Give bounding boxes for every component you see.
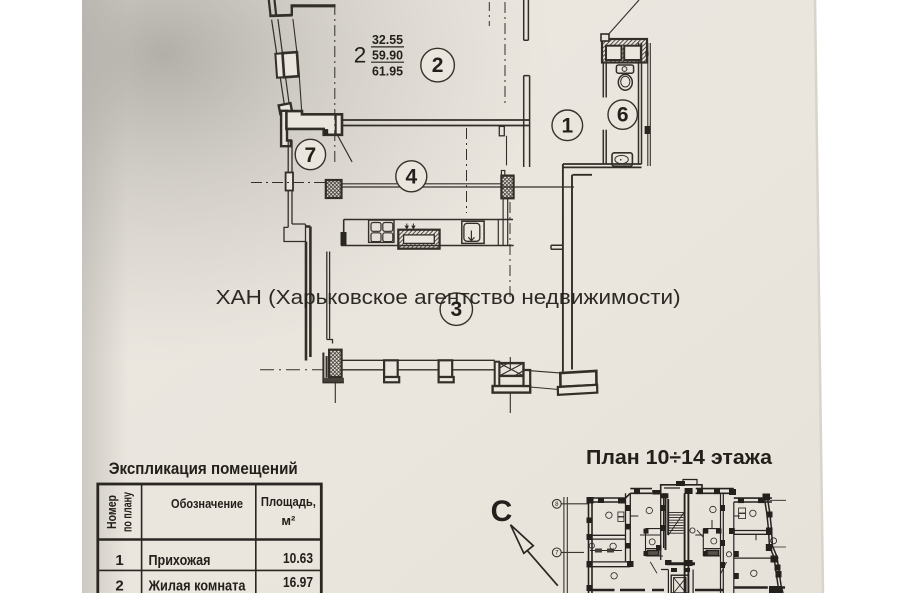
svg-text:61.95: 61.95 [372, 63, 403, 78]
svg-text:Прихожая: Прихожая [149, 552, 211, 569]
svg-text:м²: м² [281, 513, 296, 528]
svg-text:10.63: 10.63 [283, 550, 313, 567]
svg-text:ХАН (Харьковское агентство нед: ХАН (Харьковское агентство недвижимости) [216, 287, 681, 309]
svg-text:Площадь,: Площадь, [261, 494, 316, 509]
svg-text:2: 2 [354, 43, 367, 68]
svg-text:Экспликация помещений: Экспликация помещений [109, 460, 298, 478]
svg-text:2: 2 [432, 54, 444, 77]
svg-text:1: 1 [561, 114, 573, 137]
svg-text:7: 7 [305, 144, 317, 167]
svg-text:16.97: 16.97 [283, 574, 313, 591]
svg-text:Жилая комната: Жилая комната [148, 578, 246, 593]
svg-text:Номер: Номер [105, 495, 119, 529]
svg-text:1: 1 [115, 552, 123, 569]
svg-text:4: 4 [405, 165, 417, 188]
svg-text:С: С [491, 495, 513, 528]
svg-text:по плану: по плану [121, 492, 135, 532]
svg-text:Обозначение: Обозначение [171, 496, 243, 511]
svg-text:План 10÷14 этажа: План 10÷14 этажа [586, 447, 773, 469]
svg-text:6: 6 [617, 104, 629, 127]
svg-text:32.55: 32.55 [372, 32, 403, 47]
svg-text:59.90: 59.90 [372, 48, 403, 63]
svg-text:2: 2 [115, 578, 123, 593]
